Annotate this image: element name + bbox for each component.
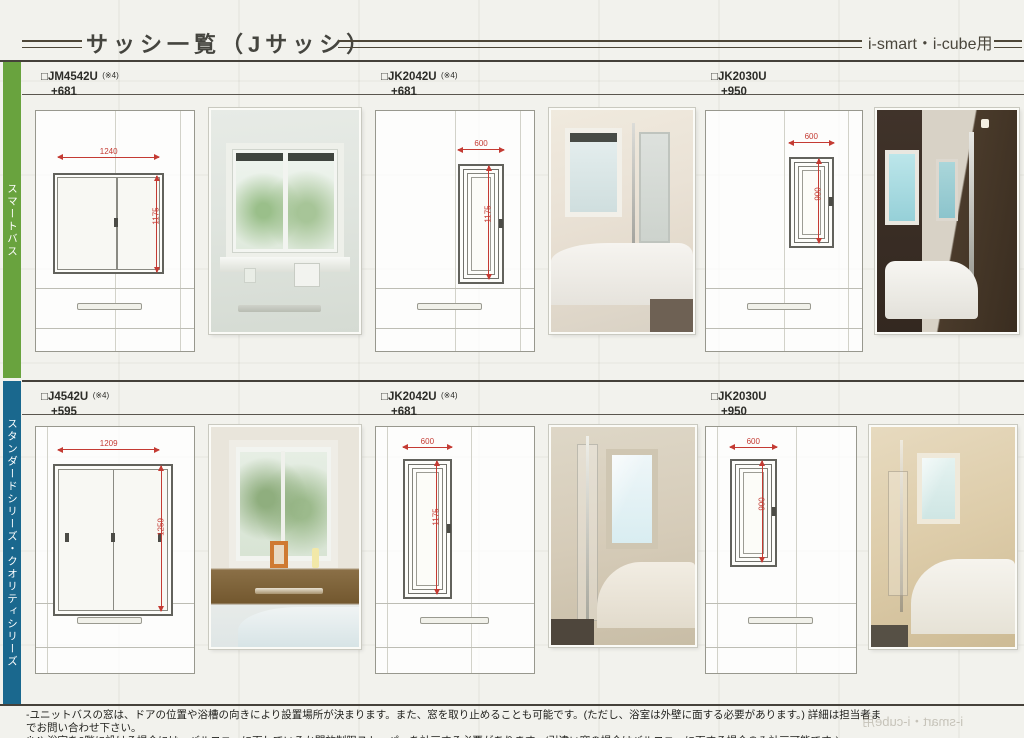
product-header: □JK2030U +950 [711, 387, 767, 418]
elevation: 600 1175 [375, 426, 535, 674]
model-code: □JM4542U [41, 71, 98, 83]
header-rule-right [994, 40, 1022, 48]
photo-mirror [639, 132, 670, 243]
photo-frame [294, 263, 320, 287]
photo-window [606, 449, 658, 549]
photo-plant [244, 268, 256, 283]
grab-bar [747, 303, 811, 310]
width-dimension: 1209 [58, 449, 159, 450]
header-rule-left [22, 40, 82, 48]
bathroom-photo [869, 425, 1017, 649]
height-dimension: 1175 [436, 461, 437, 594]
model-code: □JK2030U [711, 391, 767, 403]
window-elevation-drawing: 1209 1259 [35, 426, 195, 674]
bleedthrough-text: i-smart・i-cube用 [862, 711, 963, 730]
grab-bar [420, 617, 488, 624]
price-adder: +950 [721, 86, 767, 98]
window-slider [53, 464, 173, 617]
window-casement [730, 459, 777, 567]
height-dimension: 1175 [488, 166, 489, 279]
product-header: □JK2030U +950 [711, 67, 767, 98]
product-section: □JM4542U (※4) +681 1240 1175 [33, 62, 363, 378]
photo-window [226, 143, 344, 258]
product-section: □JK2030U +950 600 900 [703, 62, 1024, 378]
bathroom-photo [549, 425, 697, 647]
note-ref: (※4) [93, 391, 109, 400]
window-slider [53, 173, 164, 274]
elevation: 600 1175 [375, 110, 535, 352]
grab-bar [77, 617, 142, 624]
model-code: □JK2030U [711, 71, 767, 83]
photo-shower-column [586, 436, 590, 619]
height-dimension: 1175 [156, 176, 157, 272]
sidebar-standard-quality: スタンダードシリーズ・クオリティシリーズ [3, 381, 21, 704]
elevation: 600 900 [705, 110, 863, 352]
photo-light [981, 119, 989, 128]
photo-shower-column [969, 132, 973, 287]
photo-bathtub [238, 607, 359, 647]
product-header: □JK2042U (※4) +681 [381, 67, 457, 98]
height-dimension: 900 [762, 461, 763, 562]
product-header: □JK2042U (※4) +681 [381, 387, 457, 418]
window-casement [458, 164, 504, 284]
model-code: □J4542U [41, 391, 88, 403]
page-title: サッシ一覧（Jサッシ） [86, 27, 373, 59]
photo-sill [220, 257, 350, 273]
product-header: □J4542U (※4) +595 [41, 387, 109, 418]
elevation: 600 900 [705, 426, 857, 674]
photo-window-reflection [936, 159, 958, 221]
window-elevation-drawing: 600 1175 [375, 110, 535, 352]
photo-window [885, 150, 919, 225]
bathroom-photo [209, 108, 361, 334]
price-adder: +595 [51, 406, 109, 418]
window-casement [789, 157, 834, 248]
bathroom-photo [209, 425, 361, 649]
elevation: 1240 1175 [35, 110, 195, 352]
product-section: □J4542U (※4) +595 1209 1259 [33, 382, 363, 702]
price-adder: +681 [391, 406, 457, 418]
bathroom-photo [549, 108, 695, 334]
photo-floor [650, 299, 693, 332]
price-adder: +681 [391, 86, 457, 98]
product-section: □JK2030U +950 600 900 [703, 382, 1024, 702]
photo-bathtub [911, 559, 1015, 634]
height-dimension: 1259 [161, 466, 162, 611]
product-section: □JK2042U (※4) +681 600 1175 [373, 382, 703, 702]
price-adder: +681 [51, 86, 119, 98]
window-casement [403, 459, 452, 599]
model-code: □JK2042U [381, 391, 437, 403]
row-smart-bath: □JM4542U (※4) +681 1240 1175 [25, 62, 1022, 378]
product-section: □JK2042U (※4) +681 600 1175 [373, 62, 703, 378]
photo-window [565, 128, 622, 217]
note-ref: (※4) [441, 71, 457, 80]
note-ref: (※4) [102, 71, 118, 80]
series-label: i-smart・i-cube用 [868, 30, 992, 54]
header-rule-mid [338, 40, 862, 48]
catalog-page: サッシ一覧（Jサッシ） i-smart・i-cube用 スマートバス スタンダー… [0, 0, 1024, 738]
note-ref: (※4) [441, 391, 457, 400]
grab-bar [417, 303, 482, 310]
grab-bar [748, 617, 813, 624]
width-dimension: 600 [730, 447, 777, 448]
product-header: □JM4542U (※4) +681 [41, 67, 119, 98]
elevation: 1209 1259 [35, 426, 195, 674]
row-standard-quality: □J4542U (※4) +595 1209 1259 [25, 382, 1022, 702]
photo-bar [238, 305, 321, 312]
width-dimension: 600 [789, 142, 834, 143]
photo-orange-frame [270, 541, 288, 567]
footer-notes: -ユニットバスの窓は、ドアの位置や浴槽の向きにより設置場所が決まります。また、窓… [26, 709, 886, 738]
window-elevation-drawing: 600 1175 [375, 426, 535, 674]
window-elevation-drawing: 600 900 [705, 426, 857, 674]
sidebar-smart-bath-label: スマートバス [3, 183, 21, 258]
footer-note-1: -ユニットバスの窓は、ドアの位置や浴槽の向きにより設置場所が決まります。また、窓… [26, 709, 886, 735]
price-adder: +950 [721, 406, 767, 418]
bottom-border-line [0, 704, 1024, 706]
grab-bar [77, 303, 142, 310]
photo-floor [871, 625, 908, 647]
photo-window [917, 453, 960, 523]
photo-bathtub [885, 261, 977, 319]
photo-shower-glass [888, 471, 907, 596]
width-dimension: 600 [403, 447, 452, 448]
photo-bathtub [551, 243, 693, 305]
window-elevation-drawing: 1240 1175 [35, 110, 195, 352]
sidebar-standard-quality-label: スタンダードシリーズ・クオリティシリーズ [3, 418, 21, 668]
sidebar-smart-bath: スマートバス [3, 62, 21, 378]
width-dimension: 600 [458, 149, 504, 150]
bathroom-photo [875, 108, 1019, 334]
photo-bar [255, 588, 323, 595]
window-elevation-drawing: 600 900 [705, 110, 863, 352]
model-code: □JK2042U [381, 71, 437, 83]
photo-bathtub [597, 562, 695, 627]
height-dimension: 900 [818, 159, 819, 243]
photo-flower [312, 548, 319, 568]
photo-floor [551, 619, 594, 645]
width-dimension: 1240 [58, 157, 159, 158]
